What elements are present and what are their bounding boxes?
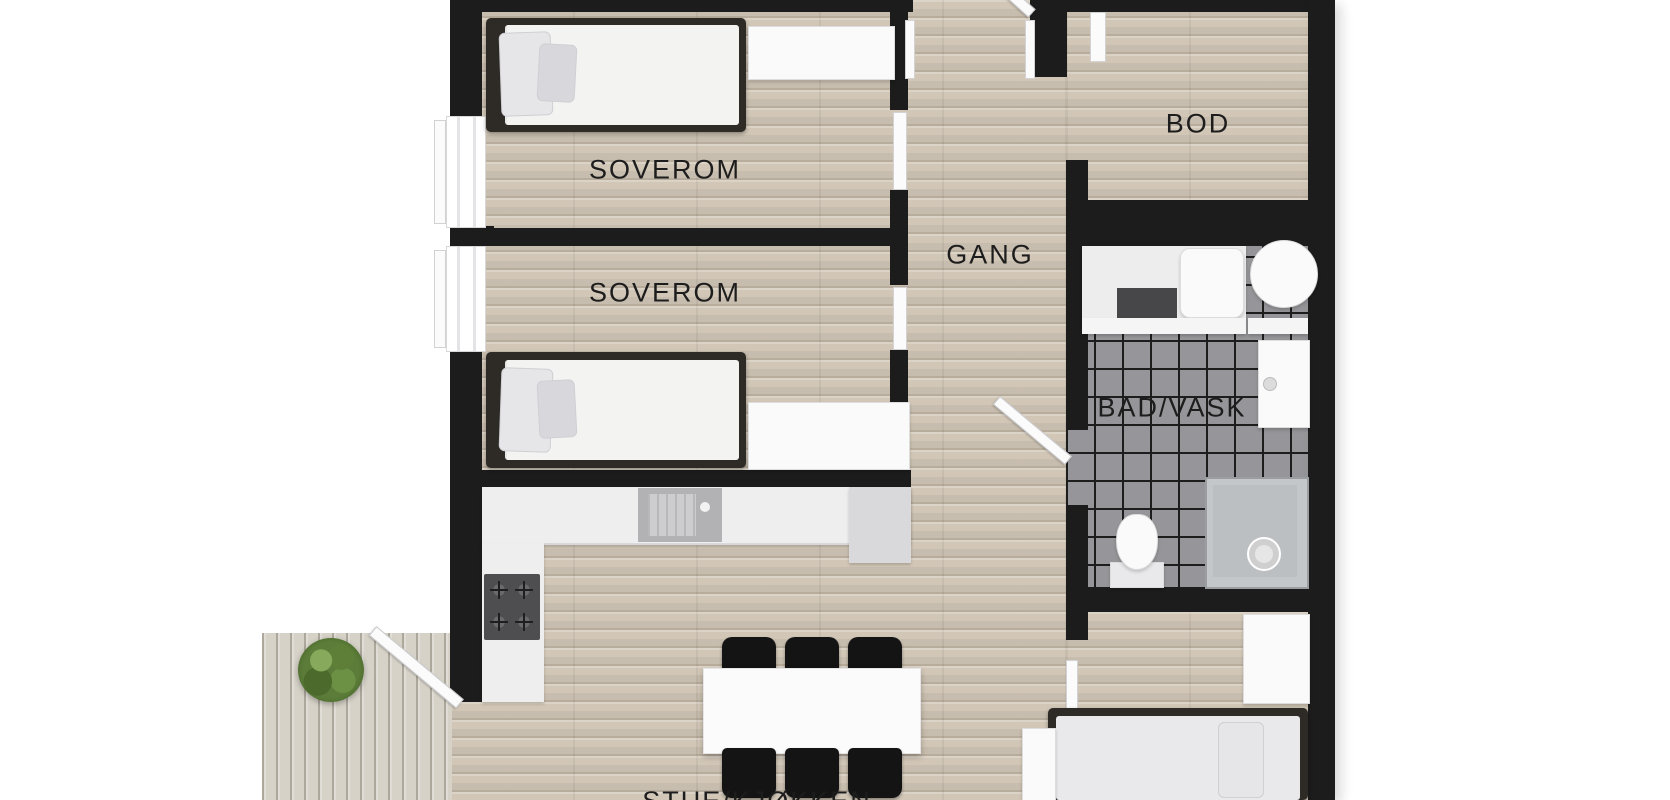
bedroom1-door bbox=[893, 112, 907, 190]
wall-left-b bbox=[450, 350, 482, 702]
window-sill-1 bbox=[434, 120, 446, 224]
pillow-small-bedroom2 bbox=[537, 379, 578, 439]
stove bbox=[484, 574, 540, 640]
room-label-hallway: GANG bbox=[946, 240, 1034, 271]
pillow-small-bedroom1 bbox=[537, 43, 578, 103]
bathroom-under-counter bbox=[1117, 288, 1177, 318]
burner bbox=[490, 581, 508, 599]
wall-entry-pier bbox=[1030, 0, 1067, 77]
shower-drain bbox=[1247, 537, 1281, 571]
wall-left-a bbox=[450, 0, 482, 116]
room-label-bedroom1: SOVEROM bbox=[589, 155, 741, 186]
wall-right-exterior bbox=[1308, 0, 1335, 800]
wall-bathroom-bottom bbox=[1066, 587, 1310, 612]
toilet-bowl bbox=[1116, 514, 1158, 570]
laundry-basket bbox=[1180, 248, 1244, 318]
burner bbox=[515, 581, 533, 599]
storage-door-frame bbox=[1090, 12, 1106, 62]
kitchen-sink-basin bbox=[648, 494, 696, 536]
room-label-storage: BOD bbox=[1166, 109, 1231, 140]
wardrobe-bedroom3 bbox=[1243, 614, 1310, 704]
wall-bedroom2-bottom bbox=[450, 470, 911, 487]
nightstand-bedroom3 bbox=[1022, 728, 1056, 800]
room-label-bedroom2: SOVEROM bbox=[589, 278, 741, 309]
basin bbox=[1250, 240, 1318, 308]
wall-bathroom-top bbox=[1066, 200, 1310, 246]
wall-top-storage bbox=[1067, 0, 1310, 12]
bathroom-shelf-right bbox=[1248, 318, 1308, 334]
wall-bedroom-divider bbox=[450, 228, 908, 246]
vanity-faucet bbox=[1263, 377, 1277, 391]
wall-top-left bbox=[450, 0, 913, 12]
wall-hall-left-b bbox=[890, 190, 908, 285]
shower bbox=[1205, 477, 1309, 589]
room-label-living-kitchen: STUE/KJØKKEN bbox=[642, 786, 872, 800]
wall-bedroom3-stub bbox=[1066, 612, 1088, 640]
burner bbox=[490, 613, 508, 631]
room-label-bathroom: BAD/VASK bbox=[1097, 393, 1246, 424]
window-bedroom2 bbox=[446, 246, 486, 352]
entry-door-post-right bbox=[1025, 20, 1035, 79]
bedroom2-door bbox=[893, 287, 907, 350]
bathroom-shelf bbox=[1082, 318, 1246, 334]
kitchen-faucet bbox=[700, 502, 710, 512]
dresser-bedroom1 bbox=[748, 26, 895, 80]
floor-plan: SOVEROM SOVEROM GANG BOD BAD/VASK STUE/K… bbox=[0, 0, 1670, 800]
kitchen-counter-return bbox=[849, 487, 911, 563]
window-sill-2 bbox=[434, 250, 446, 348]
wall-storage-left bbox=[1066, 160, 1088, 200]
wall-bathroom-left-b bbox=[1066, 505, 1088, 587]
entry-door-post-left bbox=[905, 20, 915, 79]
window-bedroom1 bbox=[446, 116, 486, 228]
plant bbox=[298, 638, 364, 702]
vanity bbox=[1258, 340, 1310, 428]
bench-bedroom2 bbox=[748, 402, 910, 470]
kitchen-sink-unit bbox=[638, 488, 722, 542]
dining-table bbox=[703, 668, 921, 754]
burner bbox=[515, 613, 533, 631]
pillow-bedroom3 bbox=[1218, 722, 1264, 798]
